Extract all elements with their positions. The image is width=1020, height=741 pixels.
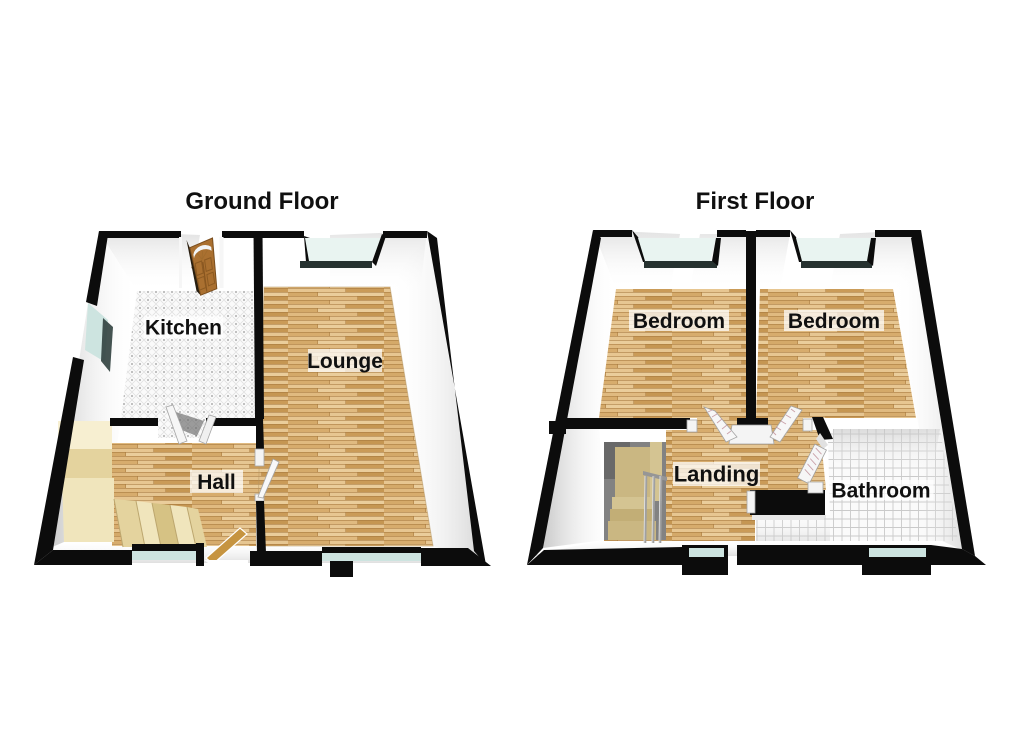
svg-text:Bedroom: Bedroom xyxy=(788,310,880,333)
svg-text:Kitchen: Kitchen xyxy=(145,316,222,339)
svg-text:Bathroom: Bathroom xyxy=(831,479,930,502)
svg-text:Lounge: Lounge xyxy=(307,350,383,373)
svg-text:Bedroom: Bedroom xyxy=(633,310,725,333)
svg-text:First Floor: First Floor xyxy=(696,188,815,215)
svg-text:Hall: Hall xyxy=(197,471,236,494)
svg-text:Ground Floor: Ground Floor xyxy=(185,188,338,215)
svg-text:Landing: Landing xyxy=(674,462,760,487)
